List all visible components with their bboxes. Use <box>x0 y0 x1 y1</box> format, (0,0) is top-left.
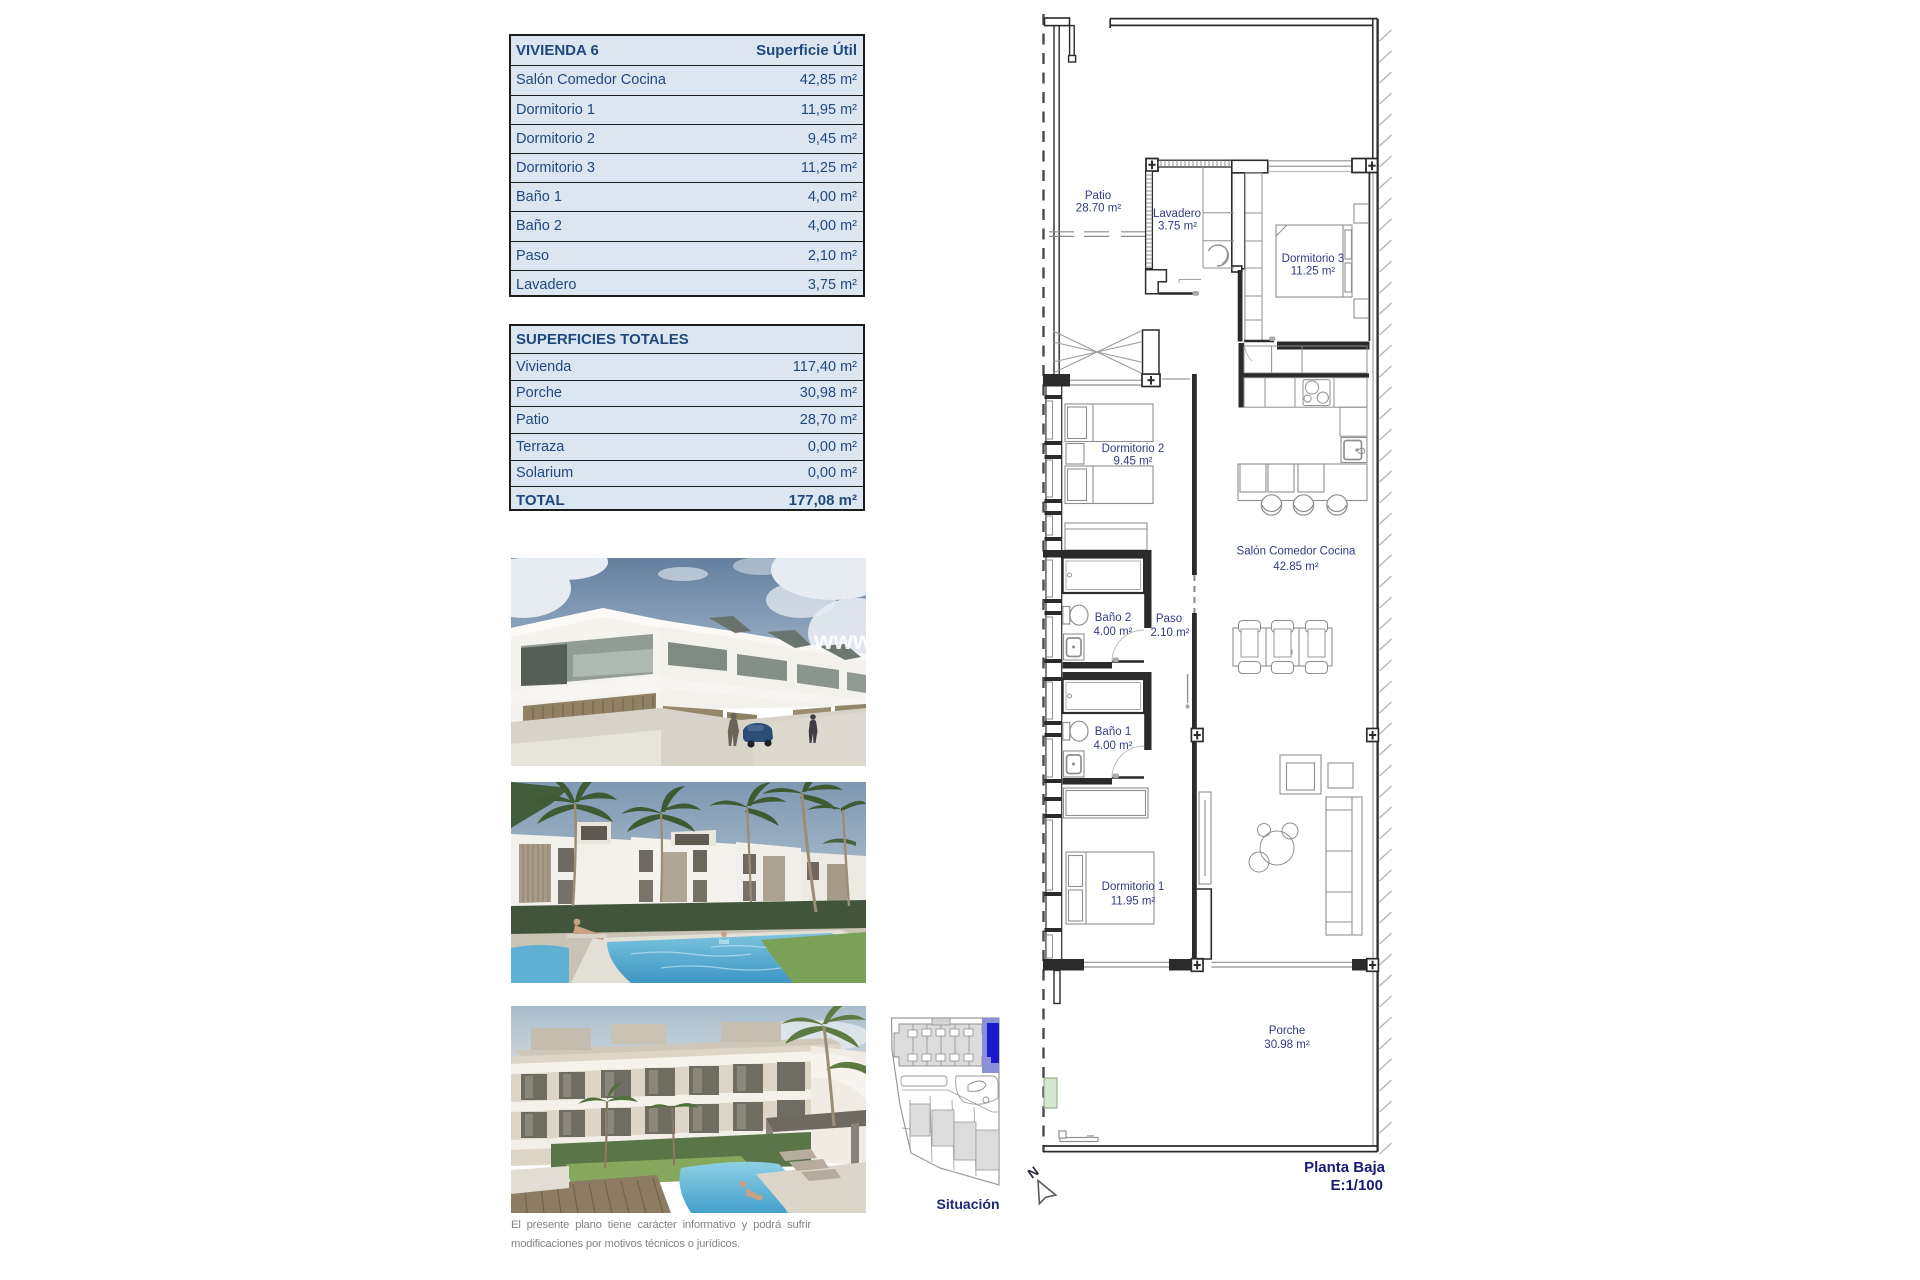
svg-text:N: N <box>1025 1164 1042 1182</box>
svg-text:4.00 m²: 4.00 m² <box>1094 626 1133 638</box>
svg-text:42.85 m²: 42.85 m² <box>1273 561 1319 573</box>
svg-text:4.00 m²: 4.00 m² <box>1094 740 1133 752</box>
svg-text:30.98 m²: 30.98 m² <box>1264 1039 1310 1051</box>
svg-text:28.70 m²: 28.70 m² <box>1076 203 1122 215</box>
svg-text:Dormitorio 2: Dormitorio 2 <box>1102 443 1165 455</box>
svg-text:3.75 m²: 3.75 m² <box>1158 221 1197 233</box>
svg-text:Lavadero: Lavadero <box>1153 208 1201 220</box>
svg-text:9.45 m²: 9.45 m² <box>1114 456 1153 468</box>
svg-text:Dormitorio 1: Dormitorio 1 <box>1102 881 1165 893</box>
svg-text:Patio: Patio <box>1085 190 1111 202</box>
svg-text:Planta Baja: Planta Baja <box>1304 1159 1386 1176</box>
svg-text:Porche: Porche <box>1269 1025 1305 1037</box>
svg-text:Dormitorio 3: Dormitorio 3 <box>1282 253 1345 265</box>
svg-text:11.25 m²: 11.25 m² <box>1291 266 1336 278</box>
svg-text:Baño 2: Baño 2 <box>1095 612 1131 624</box>
svg-text:Paso: Paso <box>1156 613 1182 625</box>
svg-text:Baño 1: Baño 1 <box>1095 726 1131 738</box>
svg-text:2.10 m²: 2.10 m² <box>1151 627 1190 639</box>
svg-text:Salón Comedor Cocina: Salón Comedor Cocina <box>1237 546 1357 558</box>
svg-text:E:1/100: E:1/100 <box>1330 1177 1383 1194</box>
svg-text:11.95 m²: 11.95 m² <box>1111 896 1156 908</box>
